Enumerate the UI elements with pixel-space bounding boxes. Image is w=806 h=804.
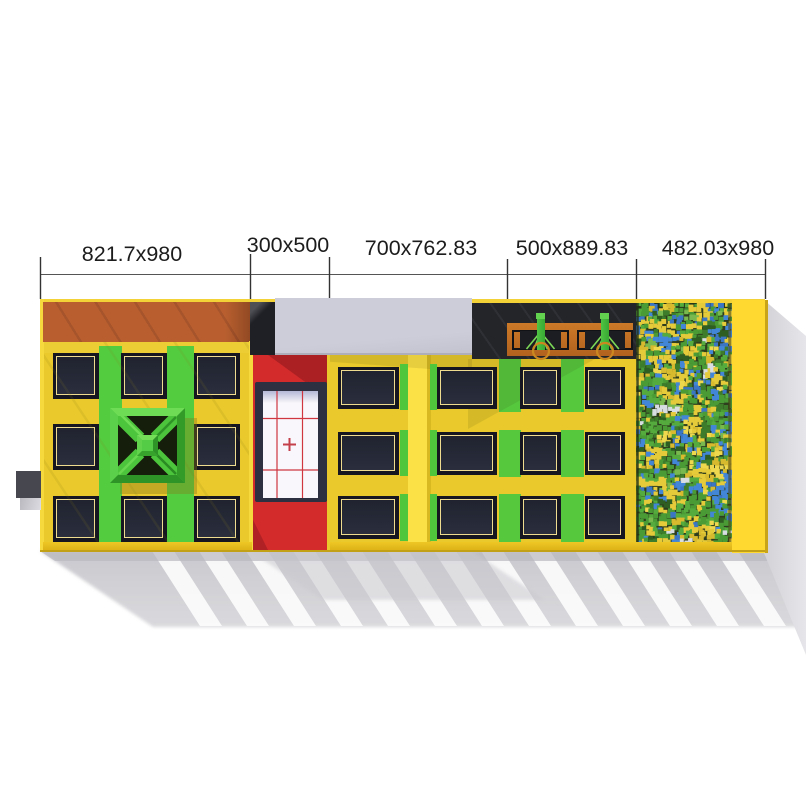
svg-text:300x500: 300x500 [247,233,330,257]
svg-text:500x889.83: 500x889.83 [516,236,628,260]
svg-text:700x762.83: 700x762.83 [365,236,477,260]
svg-text:482.03x980: 482.03x980 [662,236,774,260]
svg-text:821.7x980: 821.7x980 [82,242,182,266]
